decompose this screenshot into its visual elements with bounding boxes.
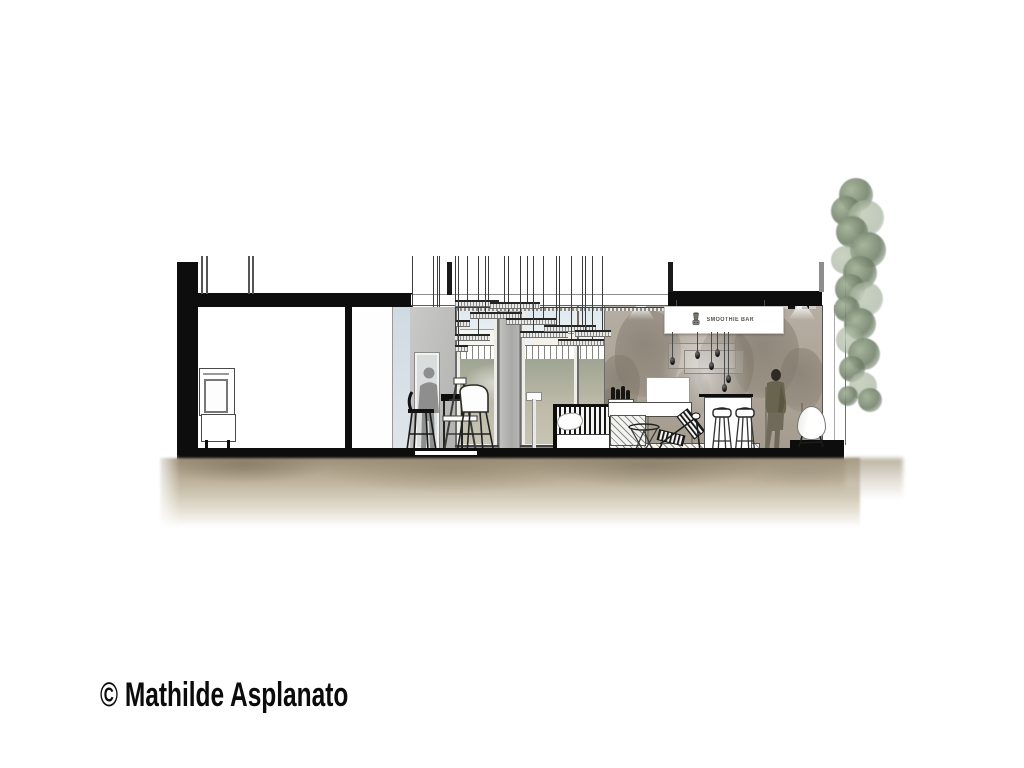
copyright-caption: © Mathilde Asplanato: [100, 676, 348, 715]
foliage-fade: [886, 165, 938, 420]
architectural-section-page: SMOOTHIE BAR: [0, 0, 1024, 768]
tree-foliage: [0, 0, 1024, 768]
foliage-blob: [858, 388, 882, 412]
foliage-blob: [838, 386, 858, 406]
